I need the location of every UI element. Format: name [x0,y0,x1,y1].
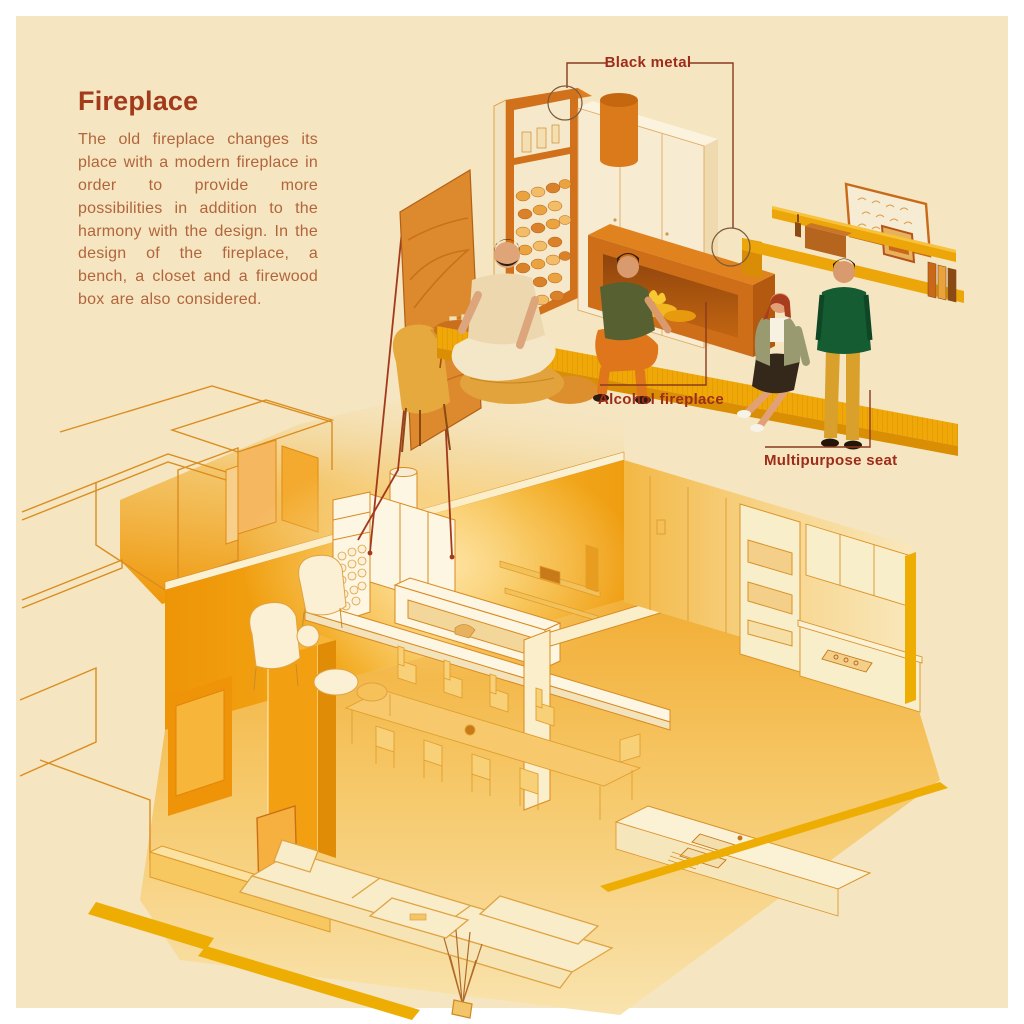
pouf-cutaway-2 [357,683,387,701]
page-title: Fireplace [78,86,318,117]
chimney [600,93,638,167]
armchair-cutaway-2 [250,603,300,669]
books [928,262,956,302]
kitchen-tall-cabinet [740,504,800,672]
wall-shelves [742,184,964,303]
label-multipurpose-seat: Multipurpose seat [764,452,897,469]
armchair-cutaway-1 [299,555,346,615]
intro-paragraph: The old fireplace changes its place with… [78,129,318,312]
side-table-cutaway [297,625,319,647]
intro-text: Fireplace The old fireplace changes its … [78,86,318,312]
pouf-cutaway-1 [314,669,358,695]
entry-door [168,676,232,816]
gold-strip-corner [905,552,916,704]
label-alcohol-fireplace: Alcohol fireplace [598,391,724,408]
label-black-metal: Black metal [605,54,692,71]
